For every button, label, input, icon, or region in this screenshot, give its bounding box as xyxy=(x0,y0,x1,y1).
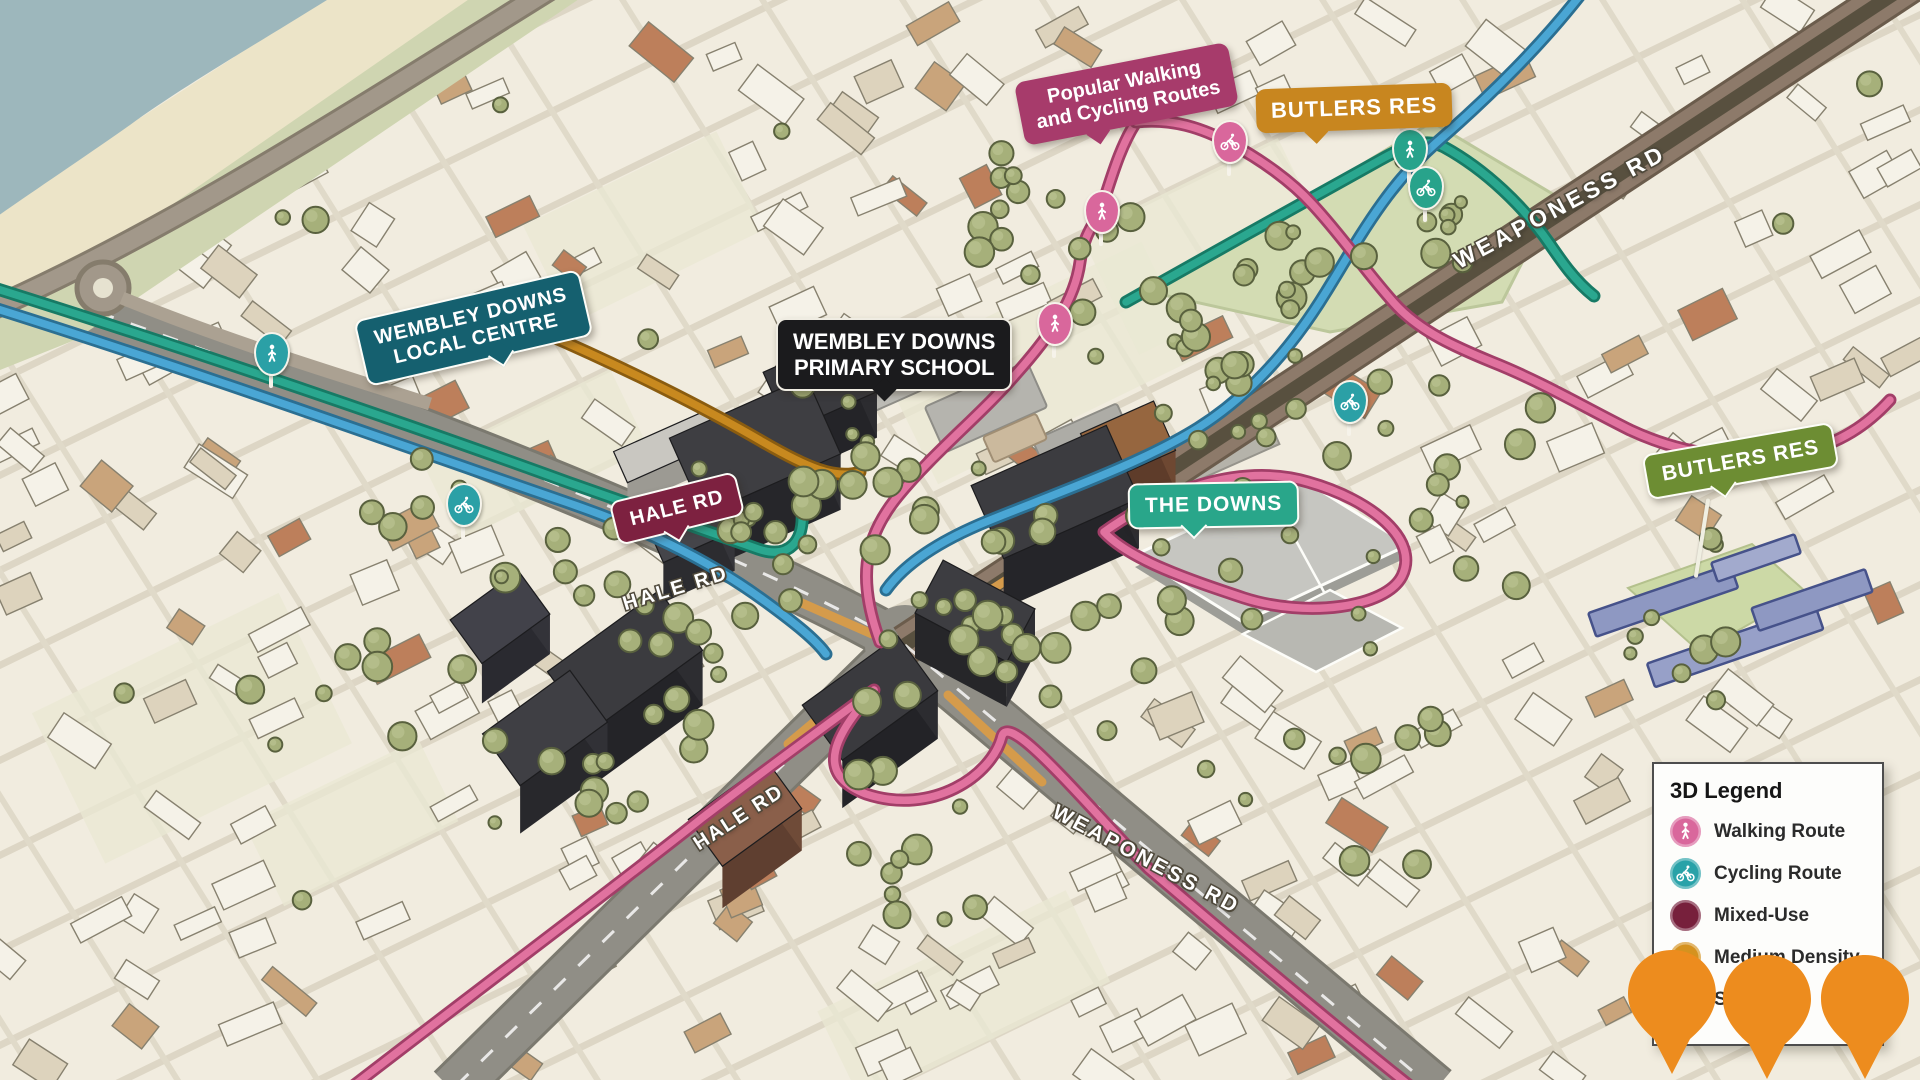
callout-text: PRIMARY SCHOOL xyxy=(794,355,994,380)
legend-label: Mixed-Use xyxy=(1714,905,1809,927)
callout-butlers-res-north: BUTLERS RES xyxy=(1255,83,1453,133)
school-swatch xyxy=(1670,984,1701,1015)
legend-row-medium-density: Medium Density xyxy=(1670,942,1866,973)
legend-label: Medium Density xyxy=(1714,947,1860,969)
callout-primary-school: WEMBLEY DOWNS PRIMARY SCHOOL xyxy=(776,318,1012,391)
walker-icon xyxy=(1670,816,1701,847)
legend-panel: 3D Legend Walking Route Cycling Route Mi… xyxy=(1652,762,1884,1046)
wembley-downs-3d-map: WEAPONESS RD WEAPONESS RD HALE RD HALE R… xyxy=(0,0,1920,1080)
callout-text: BUTLERS RES xyxy=(1271,92,1438,123)
legend-row-cycling: Cycling Route xyxy=(1670,858,1866,889)
legend-title: 3D Legend xyxy=(1670,778,1866,804)
callout-the-downs: THE DOWNS xyxy=(1128,481,1300,530)
legend-label: Cycling Route xyxy=(1714,863,1842,885)
callout-text: THE DOWNS xyxy=(1145,492,1283,517)
mixed-use-swatch xyxy=(1670,900,1701,931)
legend-row-mixed-use: Mixed-Use xyxy=(1670,900,1866,931)
legend-label: Walking Route xyxy=(1714,821,1845,843)
cyclist-icon xyxy=(1670,858,1701,889)
legend-row-school: School xyxy=(1670,984,1866,1015)
medium-density-swatch xyxy=(1670,942,1701,973)
callout-text: WEMBLEY DOWNS xyxy=(793,329,995,354)
legend-label: School xyxy=(1714,989,1777,1011)
legend-row-walking: Walking Route xyxy=(1670,816,1866,847)
